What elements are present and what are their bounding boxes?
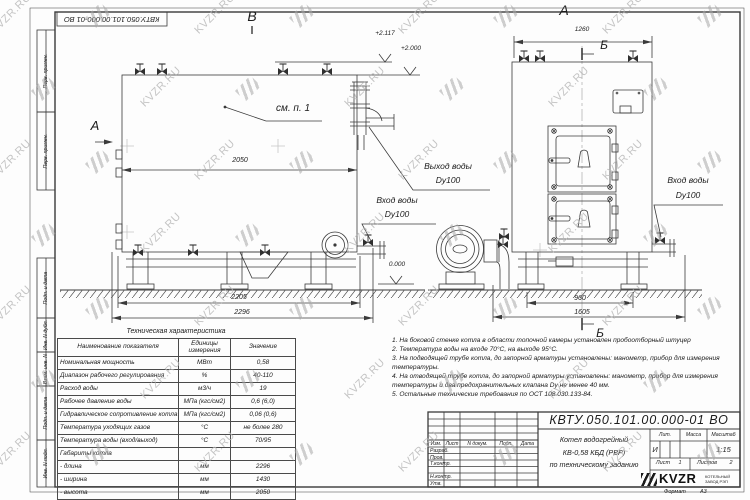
water-inlet-right-label: Вход воды — [651, 175, 725, 185]
rev-col-podp: Подп. — [495, 441, 517, 447]
table-row: Номинальная мощностьМВт0,58 — [58, 357, 296, 370]
top-left-stamp: КВТУ.050.101.00.000-01 ВО — [57, 12, 167, 26]
elevation-2117: +2.117 — [367, 30, 403, 37]
table-row: - высотамм2050 — [58, 487, 296, 500]
boiler-front-view — [428, 36, 702, 334]
table-row: Рабочее давление водыМПа (кгс/см2)0,6 (6… — [58, 396, 296, 409]
doc-number: КВТУ.050.101.00.000-01 ВО — [538, 412, 740, 429]
registration-crosses — [120, 139, 547, 257]
spec-table-title: Техническая характеристика — [57, 328, 295, 335]
dim-1260-label: 1260 — [566, 26, 598, 33]
sheets-label: Листов — [692, 460, 722, 466]
table-row: Габариты котла — [58, 448, 296, 461]
drawing-title: Котел водогрейный КВ-0,58 КБД (РВР) по т… — [538, 429, 650, 477]
boiler-side-view — [60, 26, 425, 323]
kvzr-logo-text: KVZR — [659, 471, 696, 486]
water-inlet-left-label: Вход воды — [358, 195, 436, 205]
water-outlet-label: Выход воды — [406, 161, 490, 171]
technical-notes: 1. На боковой стенке котла в области топ… — [392, 336, 744, 399]
margin-label-vzam-inv: Взам. инв. N — [37, 352, 55, 386]
water-inlet-left-dn: Dy100 — [358, 209, 436, 219]
sign-row-prov: Пров. — [430, 455, 462, 461]
dim-2296-label: 2296 — [222, 309, 262, 316]
drawing-sheet: KVZR.RUKVZR.RUKVZR.RUKVZR.RUKVZR.RUKVZR.… — [0, 0, 750, 500]
water-outlet-dn: Dy100 — [406, 175, 490, 185]
table-row: - ширинамм1430 — [58, 474, 296, 487]
section-marker-b-top: Б — [596, 38, 612, 52]
sign-row-utv: Утв. — [430, 481, 462, 487]
spec-table: Наименование показателя Единицы измерени… — [57, 338, 296, 500]
margin-label-inv-dubl: Инв. N дубл. — [37, 318, 55, 352]
scale-value: 1:15 — [707, 445, 740, 454]
spec-header-row: Наименование показателя Единицы измерени… — [58, 339, 296, 357]
table-row: Гидравлическое сопротивление котлаМПа (к… — [58, 409, 296, 422]
rev-col-data: Дата — [517, 441, 538, 447]
dim-960-label: 960 — [562, 295, 598, 302]
sign-row-nkontr: Н.контр. — [430, 474, 462, 480]
water-inlet-right-dn: Dy100 — [651, 190, 725, 200]
margin-label-perv-primen-2: Перв. примен. — [37, 112, 55, 190]
table-row: Температура воды (вход/выход)°С70/95 — [58, 435, 296, 448]
note-line: 5. Остальные технические требования по О… — [392, 390, 744, 399]
masshtab-header: Масштаб — [707, 432, 740, 438]
margin-label-podp-data-2: Подп. и дата — [37, 386, 55, 440]
sheets-value: 2 — [724, 460, 738, 466]
view-marker-v: В — [240, 8, 264, 24]
note-line: 1. На боковой стенке котла в области топ… — [392, 336, 744, 345]
drawing-title-line: по техническому заданию — [550, 459, 639, 472]
note-line: 4. На отводящей трубе котла, до запорной… — [392, 372, 744, 390]
format-value: А3 — [700, 489, 716, 495]
lit-header: Лит. — [650, 432, 680, 438]
rev-col-ndocum: N докум. — [460, 441, 495, 447]
sign-row-razrab: Разраб. — [430, 448, 462, 454]
sheet-value: 1 — [672, 460, 688, 466]
section-label-a-left: А — [85, 118, 105, 133]
table-row: Температура уходящих газов°Сне более 280 — [58, 422, 296, 435]
dim-2050-label: 2050 — [221, 157, 259, 164]
drawing-title-line: Котел водогрейный — [560, 434, 628, 447]
callout-see-item-1: см. п. 1 — [262, 103, 324, 114]
sheet-label: Лист — [652, 460, 674, 466]
drawing-title-line: КВ-0,58 КБД (РВР) — [563, 447, 625, 460]
rev-col-list: Лист — [444, 441, 460, 447]
table-row: Диапазон рабочего регулирования%40-110 — [58, 370, 296, 383]
lit-value: И — [650, 445, 660, 454]
kvzr-logo-subtitle: КОТЕЛЬНЫЙ ЗАВОД РЭП — [705, 474, 730, 484]
massa-header: Масса — [680, 432, 707, 438]
kvzr-logo-subtitle-line: ЗАВОД РЭП — [705, 479, 730, 484]
kvzr-logo-icon — [641, 473, 657, 486]
note-line: 3. На подводящей трубе котла, до запорно… — [392, 354, 744, 372]
elevation-2000: +2.000 — [393, 45, 429, 52]
table-row: - длинамм2296 — [58, 461, 296, 474]
view-marker-a-right: А — [553, 2, 575, 18]
rev-col-izm: Изм. — [428, 441, 444, 447]
margin-label-perv-primen-1: Перв. примен. — [37, 30, 55, 112]
margin-label-podp-data-1: Подп. и дата — [37, 258, 55, 318]
dim-2205-label: 2205 — [219, 294, 259, 301]
format-label: Формат — [664, 489, 694, 495]
margin-label-inv-podl: Инв. N подл. — [37, 440, 55, 487]
note-line: 2. Температура воды на входе 70°С, на вы… — [392, 345, 744, 354]
sign-row-tkontr: Т.контр. — [430, 461, 462, 467]
table-row: Расход водым3/ч19 — [58, 383, 296, 396]
elevation-0000: 0.000 — [382, 261, 412, 268]
dim-1605-label: 1605 — [564, 309, 600, 316]
